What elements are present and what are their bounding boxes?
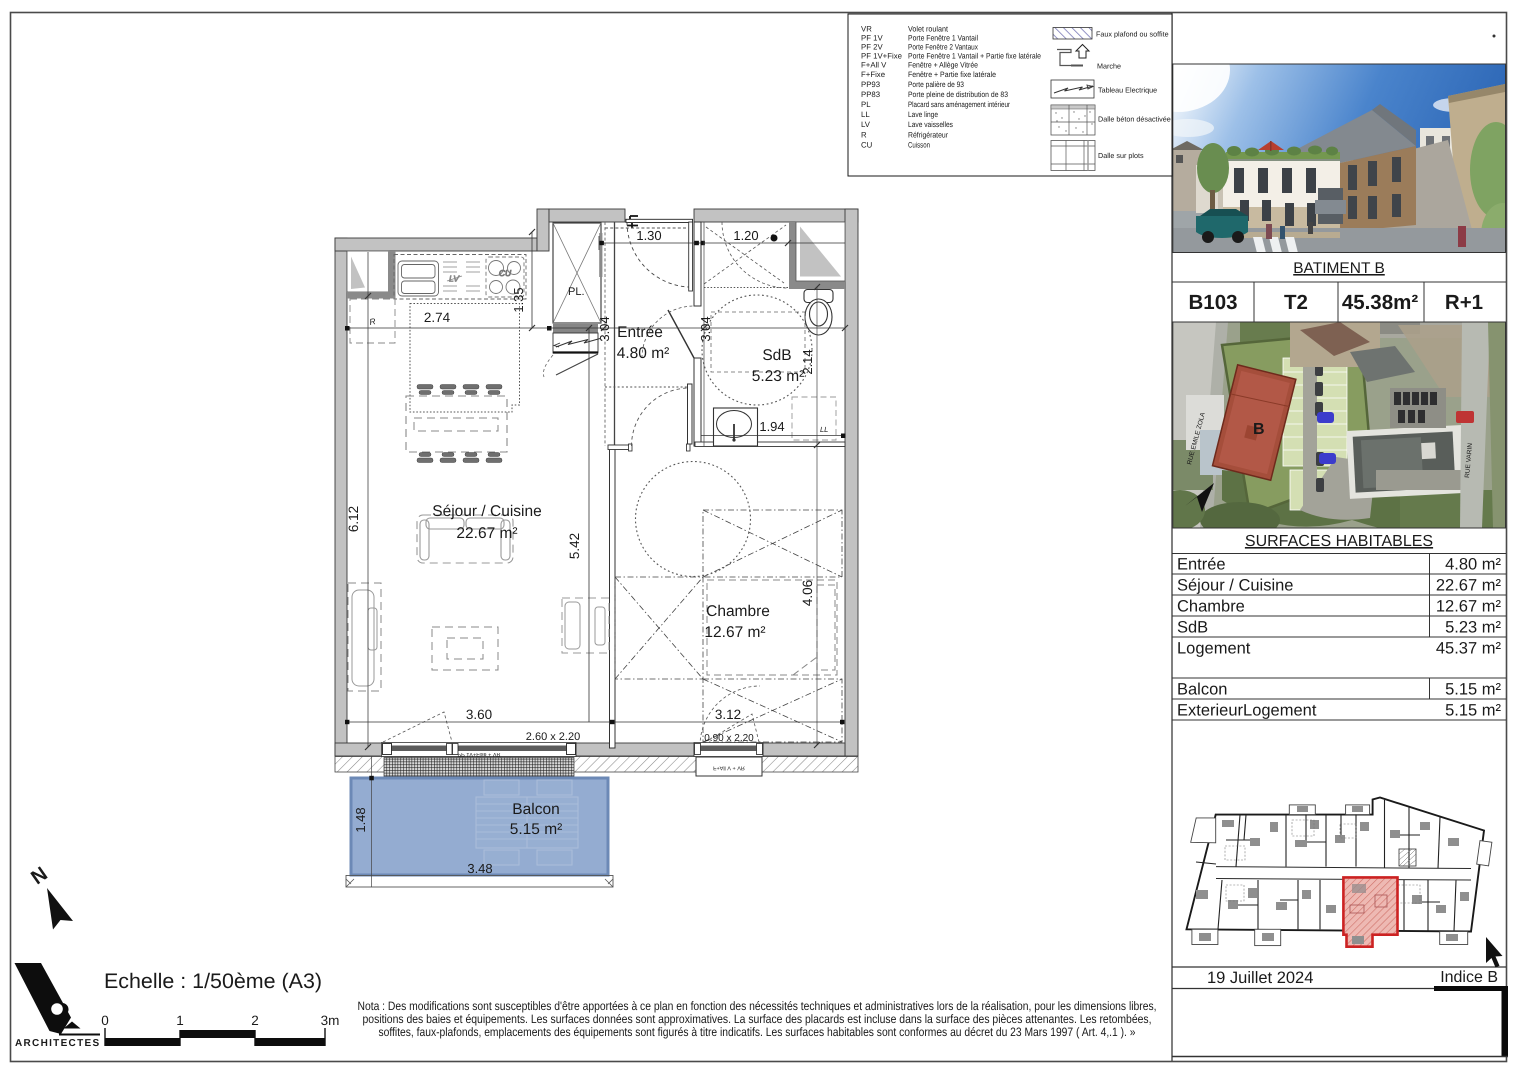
svg-text:Porte Fenêtre 1 Vantail: Porte Fenêtre 1 Vantail xyxy=(908,34,978,43)
svg-text:1.30: 1.30 xyxy=(636,228,661,243)
svg-text:positions des baies et équipem: positions des baies et équipements. Les … xyxy=(363,1012,1152,1026)
svg-text:PF 2V: PF 2V xyxy=(861,43,883,52)
svg-text:Balcon: Balcon xyxy=(512,801,559,818)
svg-text:6.12: 6.12 xyxy=(346,506,361,532)
svg-text:T2: T2 xyxy=(1284,291,1308,314)
svg-text:2: 2 xyxy=(251,1013,259,1028)
svg-text:Logement: Logement xyxy=(1177,640,1251,658)
svg-text:B: B xyxy=(1253,421,1265,438)
svg-text:F+All V: F+All V xyxy=(861,61,887,70)
svg-text:ARCHITECTES: ARCHITECTES xyxy=(15,1038,100,1049)
svg-text:Chambre: Chambre xyxy=(1177,598,1245,616)
svg-text:1.20: 1.20 xyxy=(733,228,758,243)
svg-text:Placard sans aménagement intér: Placard sans aménagement intérieur xyxy=(908,100,1010,109)
svg-text:1.48: 1.48 xyxy=(353,807,368,832)
svg-text:LV: LV xyxy=(861,120,871,129)
svg-text:Lave linge: Lave linge xyxy=(908,110,938,119)
svg-text:Chambre: Chambre xyxy=(706,603,770,620)
svg-text:PL.: PL. xyxy=(568,286,585,298)
svg-text:Indice B: Indice B xyxy=(1440,969,1498,986)
svg-text:45.38m²: 45.38m² xyxy=(1342,291,1419,314)
svg-text:22.67 m²: 22.67 m² xyxy=(1436,577,1502,595)
svg-text:Porte Fenêtre 2 Vantaux: Porte Fenêtre 2 Vantaux xyxy=(908,43,978,52)
svg-text:Porte Fenêtre 1 Vantail + Part: Porte Fenêtre 1 Vantail + Partie fixe la… xyxy=(908,52,1041,61)
svg-text:CU: CU xyxy=(499,268,512,278)
svg-text:5.15 m²: 5.15 m² xyxy=(510,821,563,838)
svg-text:SdB: SdB xyxy=(762,347,791,364)
svg-text:Lave vaisselles: Lave vaisselles xyxy=(908,120,953,129)
svg-text:Volet roulant: Volet roulant xyxy=(908,25,949,34)
svg-text:N: N xyxy=(27,863,51,889)
svg-text:Balcon: Balcon xyxy=(1177,681,1227,699)
svg-text:PF 1V+Fixe: PF 1V+Fixe xyxy=(861,52,902,61)
svg-text:2.74: 2.74 xyxy=(424,310,451,325)
svg-text:Séjour / Cuisine: Séjour / Cuisine xyxy=(432,503,541,520)
svg-text:3.12: 3.12 xyxy=(715,707,741,722)
svg-text:5.15 m²: 5.15 m² xyxy=(1445,681,1501,699)
svg-text:Cuisson: Cuisson xyxy=(908,141,930,150)
svg-text:PF 1V: PF 1V xyxy=(861,34,883,43)
svg-text:VR: VR xyxy=(861,25,872,34)
svg-text:PP93: PP93 xyxy=(861,80,880,89)
svg-text:Entrée: Entrée xyxy=(1177,556,1226,574)
svg-text:12.67 m²: 12.67 m² xyxy=(1436,598,1502,616)
svg-text:Faux plafond ou soffite: Faux plafond ou soffite xyxy=(1096,30,1169,39)
svg-text:F+All V + VR: F+All V + VR xyxy=(713,765,745,771)
svg-text:PP83: PP83 xyxy=(861,90,880,99)
svg-text:soffites, faux-plafonds, empla: soffites, faux-plafonds, emplacements de… xyxy=(379,1025,1136,1039)
svg-text:4.80 m²: 4.80 m² xyxy=(1445,556,1501,574)
svg-text:SdB: SdB xyxy=(1177,619,1208,637)
svg-text:Nota : Des modifications sont: Nota : Des modifications sont susceptibl… xyxy=(358,999,1157,1013)
svg-text:19 Juillet 2024: 19 Juillet 2024 xyxy=(1207,969,1313,987)
svg-text:2.60 x 2.20: 2.60 x 2.20 xyxy=(526,731,580,743)
svg-text:5.23 m²: 5.23 m² xyxy=(1445,619,1501,637)
svg-text:1: 1 xyxy=(176,1013,184,1028)
svg-text:Dalle sur plots: Dalle sur plots xyxy=(1098,151,1144,160)
svg-text:12.67 m²: 12.67 m² xyxy=(704,624,765,641)
svg-text:0.90 x 2.20: 0.90 x 2.20 xyxy=(704,733,754,744)
svg-text:3m: 3m xyxy=(321,1013,340,1028)
svg-text:5.23 m²: 5.23 m² xyxy=(752,368,805,385)
svg-text:3.60: 3.60 xyxy=(466,707,492,722)
svg-text:BATIMENT B: BATIMENT B xyxy=(1293,260,1385,277)
svg-text:4.80 m²: 4.80 m² xyxy=(617,345,670,362)
svg-text:Réfrigérateur: Réfrigérateur xyxy=(908,131,948,140)
svg-text:Entrée: Entrée xyxy=(617,324,663,341)
svg-text:Fenêtre + Partie fixe latérale: Fenêtre + Partie fixe latérale xyxy=(908,70,996,79)
svg-text:3.48: 3.48 xyxy=(467,861,492,876)
svg-text:Echelle : 1/50ème (A3): Echelle : 1/50ème (A3) xyxy=(104,970,322,993)
svg-text:Porte pleine de distribution d: Porte pleine de distribution de 83 xyxy=(908,90,1008,99)
svg-text:4.06: 4.06 xyxy=(800,580,815,606)
svg-text:Tableau Electrique: Tableau Electrique xyxy=(1098,86,1157,95)
svg-text:5.15 m²: 5.15 m² xyxy=(1445,702,1501,720)
svg-text:45.37 m²: 45.37 m² xyxy=(1436,640,1502,658)
svg-text:CU: CU xyxy=(861,141,873,150)
svg-text:SURFACES HABITABLES: SURFACES HABITABLES xyxy=(1245,533,1433,550)
svg-text:22.67 m²: 22.67 m² xyxy=(456,525,517,542)
svg-text:PL: PL xyxy=(861,100,871,109)
svg-text:PP 1V+Fixe + VR: PP 1V+Fixe + VR xyxy=(457,751,500,757)
svg-text:Séjour / Cuisine: Séjour / Cuisine xyxy=(1177,577,1293,595)
svg-text:1.35: 1.35 xyxy=(511,287,526,312)
svg-text:3.04: 3.04 xyxy=(698,316,713,341)
svg-text:B103: B103 xyxy=(1188,291,1237,314)
svg-text:R+1: R+1 xyxy=(1445,291,1483,314)
svg-text:Porte palière de 93: Porte palière de 93 xyxy=(908,80,964,89)
svg-text:Marche: Marche xyxy=(1097,62,1121,71)
svg-text:0: 0 xyxy=(101,1013,109,1028)
svg-text:5.42: 5.42 xyxy=(567,533,582,559)
svg-text:F+Fixe: F+Fixe xyxy=(861,70,885,79)
svg-text:R: R xyxy=(369,316,377,327)
svg-text:1.94: 1.94 xyxy=(759,419,784,434)
svg-text:LL: LL xyxy=(861,110,870,119)
svg-text:Dalle béton désactivée: Dalle béton désactivée xyxy=(1098,115,1171,124)
svg-text:LL: LL xyxy=(820,425,828,434)
svg-text:3.04: 3.04 xyxy=(597,316,612,341)
svg-text:Fenêtre + Allège Vitrée: Fenêtre + Allège Vitrée xyxy=(908,61,978,70)
svg-text:R: R xyxy=(861,131,867,140)
svg-text:ExterieurLogement: ExterieurLogement xyxy=(1177,702,1317,720)
